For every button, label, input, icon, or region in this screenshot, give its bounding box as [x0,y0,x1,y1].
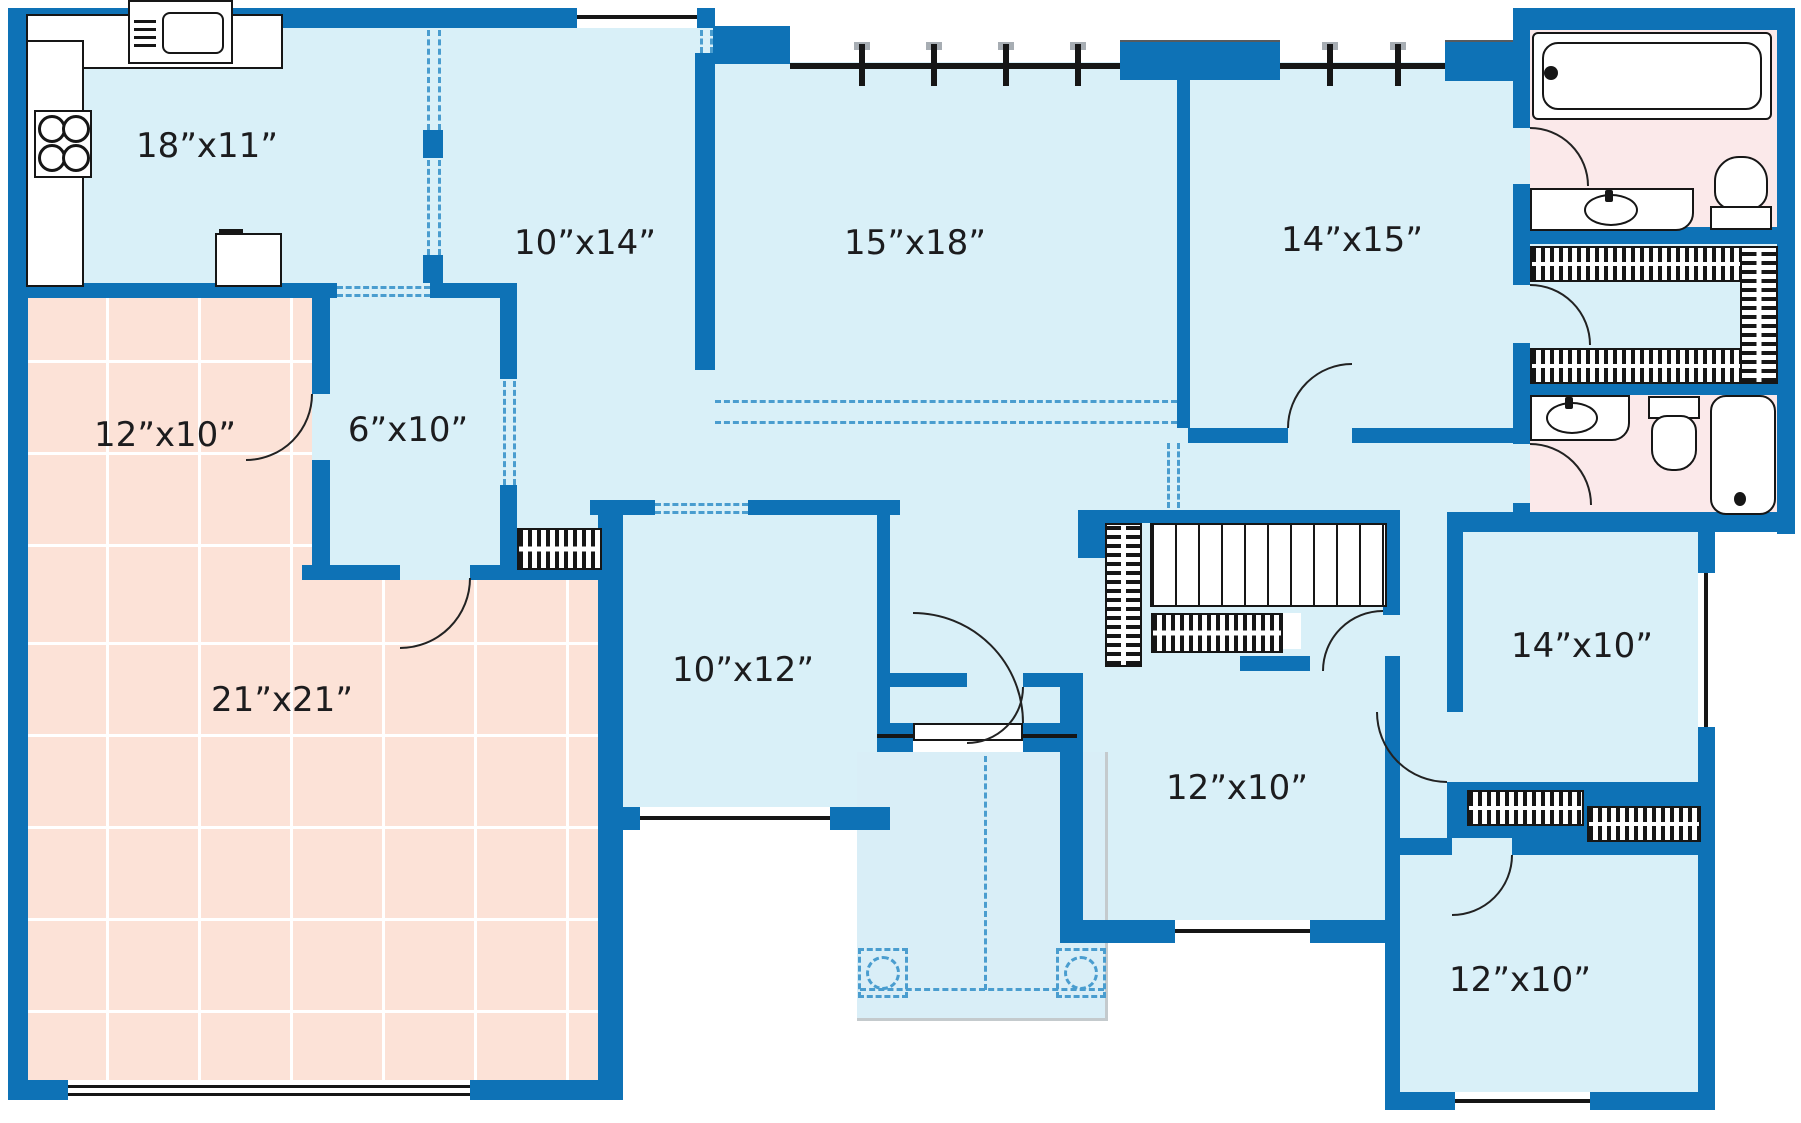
stair-handrail [1151,613,1283,653]
wall [1177,78,1190,428]
wall [1447,512,1795,532]
window-glass [1175,929,1310,933]
wall [1240,656,1310,671]
wall [1023,673,1060,687]
wall [1513,8,1530,128]
opening-dashed [438,160,441,255]
room-label-bedroom-2: 12”x10” [1166,768,1308,808]
opening-dashed [427,160,430,255]
room-label-bedroom-3: 14”x10” [1511,626,1653,666]
window-glass [1455,1099,1590,1103]
front-door-leaf [913,723,1023,741]
room-boundary-dashed [715,421,1177,424]
opening-dashed [337,286,430,289]
door-sill [1023,734,1077,738]
closet-shelf [1740,246,1778,384]
wall [1310,920,1385,943]
porch-column [858,948,908,998]
wall [830,807,890,830]
opening-dashed [655,511,748,514]
stair-landing [1283,613,1301,649]
wall [697,8,715,28]
sink-rack [134,28,156,31]
door-sill [877,734,913,738]
outside-deck-area [713,0,790,26]
wall-column [423,255,443,283]
room-label-study: 10”x12” [672,650,814,690]
closet-shelf [1530,348,1746,384]
kitchen-sink-basin [162,12,224,54]
wall [470,1080,598,1100]
room-label-garage: 21”x21” [211,680,353,720]
railing-post [1327,44,1333,86]
tub-faucet [1544,66,1558,80]
window-glass [640,816,830,820]
wall [1590,1092,1715,1110]
wall [1385,1092,1455,1110]
opening-dashed [438,30,441,130]
wall [1445,42,1513,81]
room-label-garage-bay: 12”x10” [94,415,236,455]
sink-rack [134,44,156,47]
opening-dashed [700,30,703,53]
wall [695,53,715,370]
railing-post [931,44,937,86]
deck-railing [790,63,1120,69]
closet-shelf [1587,806,1701,842]
dishwasher-handle [219,229,243,233]
tub-faucet [1734,492,1746,506]
wall [1513,503,1530,532]
sink-faucet [1605,190,1613,202]
porch-edge-dashed [984,756,987,990]
railing-post [1395,44,1401,86]
closet-shelf [1467,790,1584,826]
sink-faucet [1565,397,1573,409]
wall [1188,428,1288,443]
wall [1777,8,1795,534]
garage-door-panel [68,1093,470,1096]
wall [877,500,890,725]
deck-railing [1280,63,1445,69]
room-label-kitchen: 18”x11” [136,126,278,166]
porch-column [1056,948,1106,998]
garage-entry-steps [517,528,602,570]
opening-dashed [710,30,713,53]
window-glass [577,15,697,19]
wall [590,500,655,515]
garage-door [68,1080,470,1100]
room-label-mudroom: 6”x10” [348,410,468,450]
wall [1447,532,1463,712]
wall [1078,523,1105,558]
wall [713,26,790,64]
wall [1513,8,1795,30]
outside-below-garage [8,1100,623,1123]
staircase [1150,523,1387,607]
dishwasher [215,233,282,287]
opening-dashed [503,381,506,485]
closet-shelf [1530,246,1746,282]
garage-door-panel [68,1085,470,1088]
wall [890,673,967,687]
wall [598,807,642,830]
floor-plan: 18”x11” 10”x14” 15”x18” 14”x15” 6”x10” 1… [0,0,1801,1123]
wall-column [423,130,443,158]
sink-rack [134,36,156,39]
wall [1352,428,1513,443]
outside-right [1715,532,1801,1123]
room-label-dining-room: 10”x14” [514,223,656,263]
room-boundary-dashed [715,400,1177,403]
wall [312,298,330,394]
railing-post [859,44,865,86]
wall [8,8,28,1100]
wall [1385,656,1400,1092]
wall [1060,920,1175,943]
garage-floor [28,580,598,1080]
room-boundary-dashed [1167,443,1170,508]
porch-column-base [866,956,900,990]
room-label-master-bedroom: 14”x15” [1281,220,1423,260]
wall [1060,673,1083,943]
wall [1385,838,1452,855]
wall [1078,510,1400,523]
stair-handrail [1105,523,1142,667]
opening-dashed [337,294,430,297]
opening-dashed [655,503,748,506]
wall [302,565,400,580]
room-label-living-room: 15”x18” [844,223,986,263]
window-glass [1704,573,1708,727]
toilet-tank [1710,206,1772,230]
wall [1513,244,1530,285]
room-label-bedroom-4: 12”x10” [1449,960,1591,1000]
bathtub-basin [1542,42,1762,110]
porch-column-base [1064,956,1098,990]
wall [430,283,517,298]
railing-post [1003,44,1009,86]
room-boundary-dashed [1177,443,1180,508]
opening-dashed [427,30,430,130]
sink-rack [134,20,156,23]
wall [1120,42,1280,80]
toilet-bowl [1651,415,1697,471]
toilet-bowl [1714,156,1768,210]
wall [8,1080,68,1100]
railing-post [1075,44,1081,86]
wall [312,460,330,580]
stove-burner [62,115,90,143]
opening-dashed [513,381,516,485]
outside-bottom-right-of-porch [1085,943,1385,1123]
stove-burner [62,144,90,172]
wall [500,298,517,379]
